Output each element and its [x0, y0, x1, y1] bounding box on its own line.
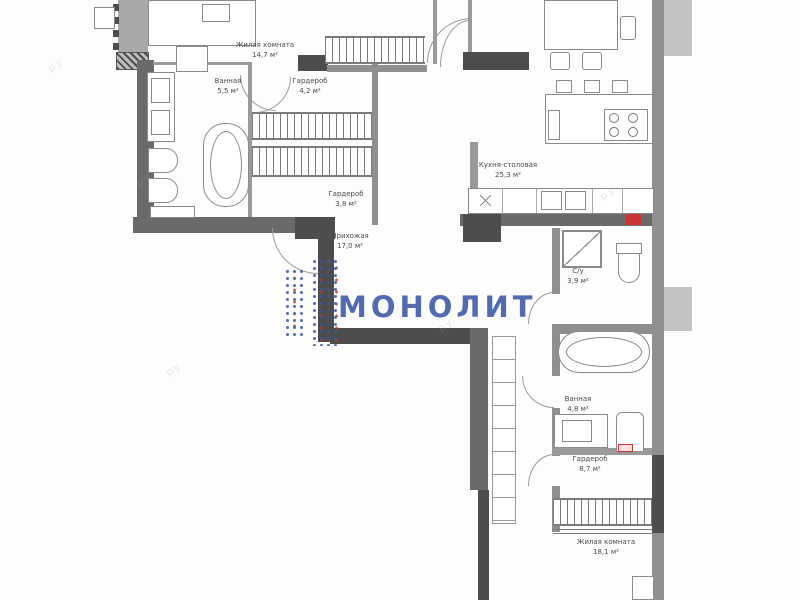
- room-name: Жилая комната: [205, 40, 325, 50]
- utility-marker-bath: [618, 444, 633, 452]
- watermark-text: МОНОЛИТ: [338, 290, 537, 324]
- corridor-shelves: [492, 336, 516, 524]
- room-label-wc: С/у 3,9 м²: [556, 266, 600, 286]
- room-area: 17,0 м²: [312, 241, 388, 251]
- chair: [582, 52, 602, 70]
- room-name: Гардероб: [278, 76, 342, 86]
- room-label-wardrobe-bottom: Гардероб 8,7 м²: [558, 454, 622, 474]
- chair: [550, 52, 570, 70]
- shaft-tick: [113, 43, 119, 50]
- room-area: 18,1 м²: [560, 547, 652, 557]
- balcony-block-top: [664, 0, 692, 56]
- room-name: Ванная: [548, 394, 608, 404]
- room-name: Кухня-столовая: [466, 160, 550, 170]
- counter-divider: [502, 189, 503, 213]
- closet-rail-bottom: [553, 498, 652, 526]
- bidet: [148, 178, 178, 203]
- room-label-kitchen: Кухня-столовая 25,3 м²: [466, 160, 550, 180]
- room-area: 3,8 м²: [310, 199, 382, 209]
- chair: [620, 16, 636, 40]
- wall-kitchen-block: [463, 52, 529, 70]
- nightstand: [176, 46, 208, 72]
- monolith-logo-icon: [284, 268, 306, 336]
- stove-burner: [609, 127, 619, 137]
- room-area: 8,7 м²: [558, 464, 622, 474]
- shaft-tick: [113, 30, 119, 37]
- room-name: Гардероб: [310, 189, 382, 199]
- bar-stool: [612, 80, 628, 93]
- toilet: [148, 148, 178, 173]
- room-label-hallway: Прихожая 17,0 м²: [312, 231, 388, 251]
- island-sink: [548, 110, 560, 140]
- bathtub-right-inner: [566, 337, 642, 367]
- furniture-stub: [632, 576, 654, 600]
- appliance-mark: [480, 195, 491, 206]
- watermark-ghost: ру: [164, 360, 184, 378]
- dining-table: [544, 0, 618, 50]
- wall-corridor-left: [470, 328, 488, 490]
- room-name: Гардероб: [558, 454, 622, 464]
- utility-marker-kitchen: [626, 214, 641, 225]
- sink: [151, 110, 170, 135]
- room-name: С/у: [556, 266, 600, 276]
- sink: [151, 78, 170, 103]
- bar-stool: [556, 80, 572, 93]
- room-label-living-bottom: Жилая комната 18,1 м²: [560, 537, 652, 557]
- bath-cabinet: [150, 206, 195, 218]
- vanity-sink: [562, 420, 592, 442]
- counter-divider: [592, 189, 593, 213]
- room-label-wardrobe-mid: Гардероб 3,8 м²: [310, 189, 382, 209]
- room-area: 14,7 м²: [205, 50, 325, 60]
- room-label-bathroom-left: Ванная 5,5 м²: [196, 76, 260, 96]
- room-area: 5,5 м²: [196, 86, 260, 96]
- watermark-ghost: ру: [46, 56, 66, 74]
- room-name: Ванная: [196, 76, 260, 86]
- stove-burner: [628, 127, 638, 137]
- door-arc-wardrobe-bottom: [528, 454, 554, 486]
- room-area: 4,8 м²: [548, 404, 608, 414]
- wall-hall-bottom: [330, 328, 480, 344]
- room-label-living-top: Жилая комната 14,7 м²: [205, 40, 325, 60]
- shaft-column: [118, 0, 148, 52]
- stove-burner: [609, 113, 619, 123]
- kitchen-sink: [541, 191, 562, 210]
- room-area: 3,9 м²: [556, 276, 600, 286]
- wall-kitchen-bottom-block: [463, 214, 501, 242]
- room-area: 4,2 м²: [278, 86, 342, 96]
- floor-plan: Жилая комната 14,7 м² Ванная 5,5 м² Гард…: [0, 0, 800, 600]
- wardrobe-rail-top: [325, 36, 425, 64]
- kitchen-sink: [565, 191, 586, 210]
- bathtub-left-inner: [210, 131, 242, 199]
- room-label-wardrobe-top: Гардероб 4,2 м²: [278, 76, 342, 96]
- stove-burner: [628, 113, 638, 123]
- shower: [562, 230, 602, 268]
- balcony-block-mid: [664, 287, 692, 331]
- counter-divider: [622, 189, 623, 213]
- bed-pillow: [202, 4, 230, 22]
- shaft-box: [94, 7, 115, 29]
- room-name: Прихожая: [312, 231, 388, 241]
- room-area: 25,3 м²: [466, 170, 550, 180]
- room-name: Жилая комната: [560, 537, 652, 547]
- bar-stool: [584, 80, 600, 93]
- counter-divider: [536, 189, 537, 213]
- closet-front-line: [553, 529, 652, 534]
- closet-rail-1: [252, 112, 372, 140]
- wall-right-outer-dark: [652, 455, 664, 533]
- wall-corridor-left-lower: [478, 490, 489, 600]
- closet-rail-2: [252, 146, 372, 177]
- toilet-bowl: [618, 253, 640, 283]
- monolith-logo-icon: [311, 258, 339, 346]
- room-label-bathroom-right: Ванная 4,8 м²: [548, 394, 608, 414]
